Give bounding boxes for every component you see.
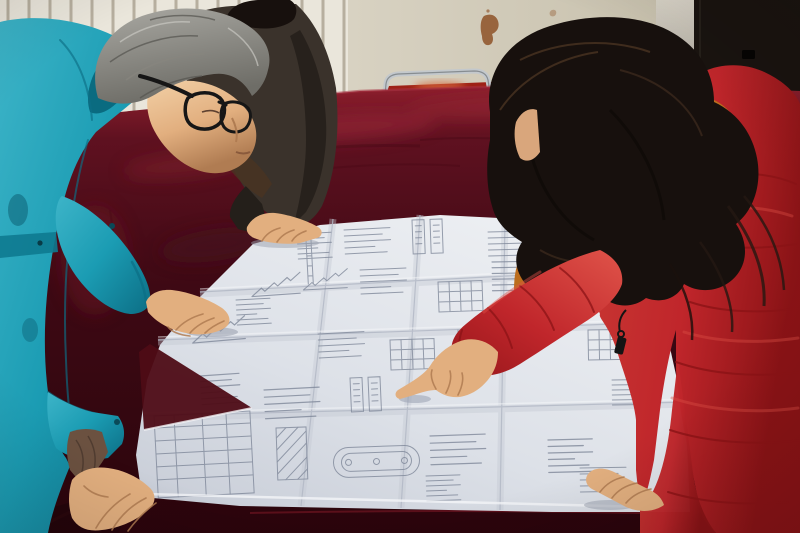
vignette: [0, 0, 800, 533]
photo-canvas: [0, 0, 800, 533]
photo-two-workers-reviewing-blueprint: [0, 0, 800, 533]
